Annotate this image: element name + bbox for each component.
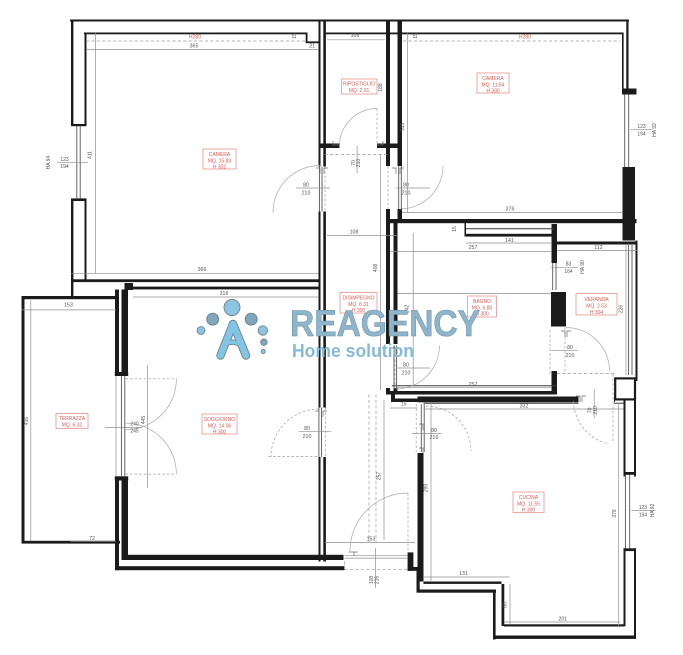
svg-text:194: 194 <box>639 512 648 518</box>
svg-text:H 302: H 302 <box>213 165 227 171</box>
svg-text:123: 123 <box>637 124 646 130</box>
svg-text:515: 515 <box>400 123 406 132</box>
svg-text:H 300: H 300 <box>486 89 500 95</box>
svg-text:257: 257 <box>469 245 478 251</box>
svg-text:H280: H280 <box>189 35 201 41</box>
svg-text:141: 141 <box>505 238 514 244</box>
svg-text:72: 72 <box>89 536 95 542</box>
svg-text:379: 379 <box>612 509 618 518</box>
svg-text:15: 15 <box>452 226 458 232</box>
svg-text:H 304: H 304 <box>590 310 604 316</box>
svg-text:245: 245 <box>130 429 139 435</box>
svg-text:CAMERA: CAMERA <box>482 76 504 82</box>
svg-text:210: 210 <box>402 371 411 377</box>
svg-text:299: 299 <box>424 484 430 493</box>
svg-text:210: 210 <box>566 353 575 359</box>
svg-text:131: 131 <box>459 571 468 577</box>
svg-text:15: 15 <box>401 402 407 408</box>
svg-text:80: 80 <box>403 363 409 369</box>
svg-text:80: 80 <box>403 183 409 189</box>
svg-text:80: 80 <box>567 345 573 351</box>
svg-text:112: 112 <box>594 245 602 251</box>
svg-text:HA 90: HA 90 <box>580 260 586 274</box>
svg-text:21: 21 <box>309 44 315 50</box>
svg-text:80: 80 <box>304 426 310 432</box>
svg-text:445: 445 <box>141 416 147 425</box>
svg-text:216: 216 <box>375 576 381 585</box>
svg-text:408: 408 <box>373 264 379 273</box>
svg-text:210: 210 <box>356 159 362 168</box>
svg-text:H280: H280 <box>519 35 531 41</box>
svg-text:VERANDA: VERANDA <box>584 297 609 303</box>
svg-text:416: 416 <box>24 417 30 426</box>
svg-text:CUCINA: CUCINA <box>519 495 539 501</box>
svg-text:H 300: H 300 <box>213 430 227 436</box>
svg-text:188: 188 <box>378 83 384 92</box>
svg-text:210: 210 <box>593 406 599 415</box>
svg-text:194: 194 <box>60 164 69 170</box>
svg-text:80: 80 <box>431 428 437 434</box>
svg-text:RIPOSTIGLIO: RIPOSTIGLIO <box>343 82 375 88</box>
svg-text:210: 210 <box>303 434 312 440</box>
svg-text:HA 94: HA 94 <box>46 155 52 169</box>
svg-text:316: 316 <box>220 291 229 297</box>
svg-text:201: 201 <box>558 616 567 622</box>
svg-text:15: 15 <box>413 33 419 39</box>
svg-text:MQ. 2.53: MQ. 2.53 <box>586 304 607 310</box>
svg-text:TERRAZZA: TERRAZZA <box>59 416 86 422</box>
svg-text:123: 123 <box>60 157 69 163</box>
svg-text:DISIMPEGNO: DISIMPEGNO <box>343 296 375 302</box>
svg-text:194: 194 <box>637 132 646 138</box>
svg-text:80: 80 <box>303 183 309 189</box>
svg-text:REAGENCY: REAGENCY <box>290 303 480 344</box>
svg-text:164: 164 <box>564 269 573 275</box>
svg-text:SOGGIORNO: SOGGIORNO <box>204 417 236 423</box>
svg-text:80: 80 <box>503 602 509 608</box>
svg-text:365: 365 <box>190 44 199 50</box>
svg-text:376: 376 <box>506 207 515 213</box>
svg-text:240: 240 <box>130 422 139 428</box>
svg-text:153: 153 <box>367 537 376 543</box>
svg-text:210: 210 <box>402 191 411 197</box>
svg-text:83: 83 <box>566 262 572 268</box>
svg-text:257: 257 <box>377 472 383 481</box>
svg-text:366: 366 <box>198 267 207 273</box>
svg-text:153: 153 <box>64 302 73 308</box>
svg-text:HA 92: HA 92 <box>652 123 658 137</box>
svg-text:H 300: H 300 <box>522 508 536 514</box>
svg-text:257: 257 <box>469 382 478 388</box>
svg-text:MQ. 6.32: MQ. 6.32 <box>62 423 83 429</box>
svg-text:Home solution: Home solution <box>292 340 414 361</box>
svg-text:210: 210 <box>302 191 311 197</box>
svg-text:MQ. 2.01: MQ. 2.01 <box>349 88 370 94</box>
svg-text:123: 123 <box>639 505 648 511</box>
svg-text:108: 108 <box>351 33 360 39</box>
svg-text:HA 92: HA 92 <box>650 503 656 517</box>
svg-text:CAMERA: CAMERA <box>209 152 231 158</box>
svg-text:108: 108 <box>350 230 359 236</box>
svg-text:226: 226 <box>619 305 625 314</box>
svg-text:411: 411 <box>88 151 94 159</box>
svg-text:332: 332 <box>520 404 529 410</box>
svg-text:15: 15 <box>292 33 298 39</box>
